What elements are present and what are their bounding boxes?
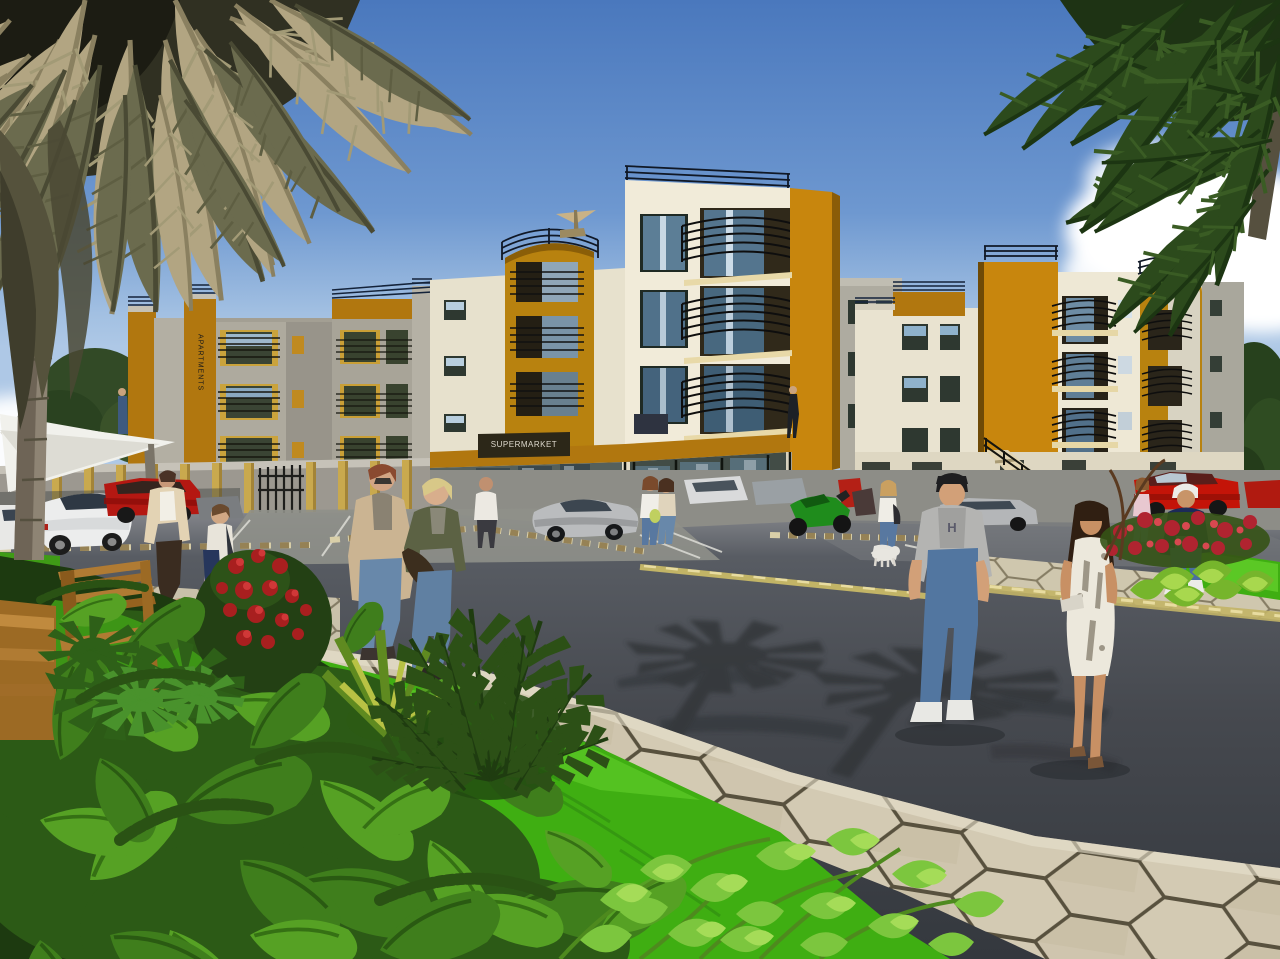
- svg-text:H: H: [947, 520, 956, 535]
- svg-text:SUPERMARKET: SUPERMARKET: [491, 440, 557, 449]
- svg-text:APARTMENTS: APARTMENTS: [197, 334, 204, 391]
